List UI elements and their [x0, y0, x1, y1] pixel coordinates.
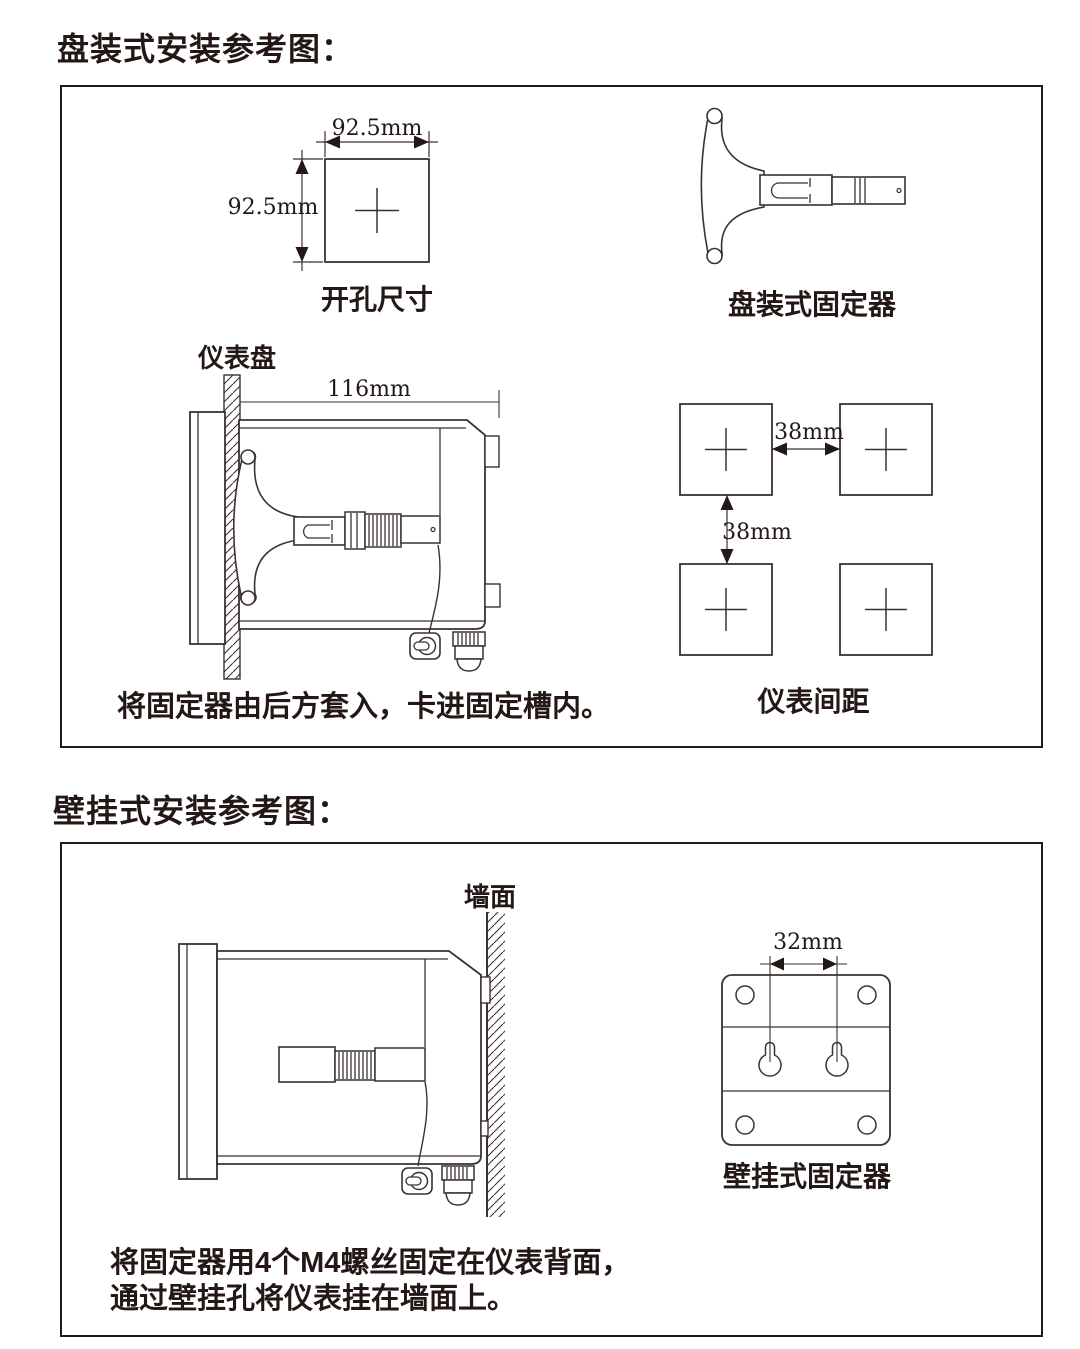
bezel — [179, 944, 217, 1179]
spacing-h-dim: 38mm — [774, 420, 844, 445]
cutout-width-dim: 92.5mm — [332, 116, 423, 141]
wall-hatch-bar — [487, 912, 505, 1217]
spacing-v-dim: 38mm — [722, 520, 792, 545]
panel-side-view-drawing — [190, 375, 500, 679]
instrument-panel-label: 仪表盘 — [192, 338, 282, 375]
wall-fixer-label: 壁挂式固定器 — [712, 1155, 902, 1195]
panel-mount-box: 92.5mm 92.5mm — [60, 85, 1043, 748]
fixer-shaft — [294, 517, 345, 545]
spacing-label: 仪表间距 — [741, 680, 886, 720]
wall-mount-caption-line2: 通过壁挂孔将仪表挂在墙面上。 — [110, 1275, 516, 1317]
panel-mount-title: 盘装式安装参考图： — [57, 24, 354, 70]
fixing-slot — [279, 1047, 335, 1082]
bezel — [190, 412, 225, 644]
panel-mount-drawing: 92.5mm 92.5mm — [62, 87, 1041, 746]
wall-surface-label: 墙面 — [460, 877, 520, 914]
keyhole-spacing-dim: 32mm — [773, 930, 843, 955]
wall-side-view-drawing — [179, 912, 505, 1217]
cutout-height-dim: 92.5mm — [228, 195, 319, 220]
wall-mount-box: 32mm 墙面 壁挂式固定器 将固定器用4个M4螺丝固定在仪表背面， 通过壁挂孔… — [60, 842, 1043, 1337]
cutout-size-label: 开孔尺寸 — [297, 278, 457, 318]
depth-dim: 116mm — [327, 377, 411, 402]
manual-page: 盘装式安装参考图： — [0, 0, 1080, 1349]
wall-fixer-drawing — [722, 956, 890, 1145]
panel-fixer-label: 盘装式固定器 — [717, 283, 907, 323]
fixer-plate — [722, 975, 890, 1145]
panel-fixer-drawing — [701, 109, 905, 264]
wall-mount-title: 壁挂式安装参考图： — [53, 786, 350, 832]
panel-mount-caption: 将固定器由后方套入，卡进固定槽内。 — [117, 683, 610, 725]
